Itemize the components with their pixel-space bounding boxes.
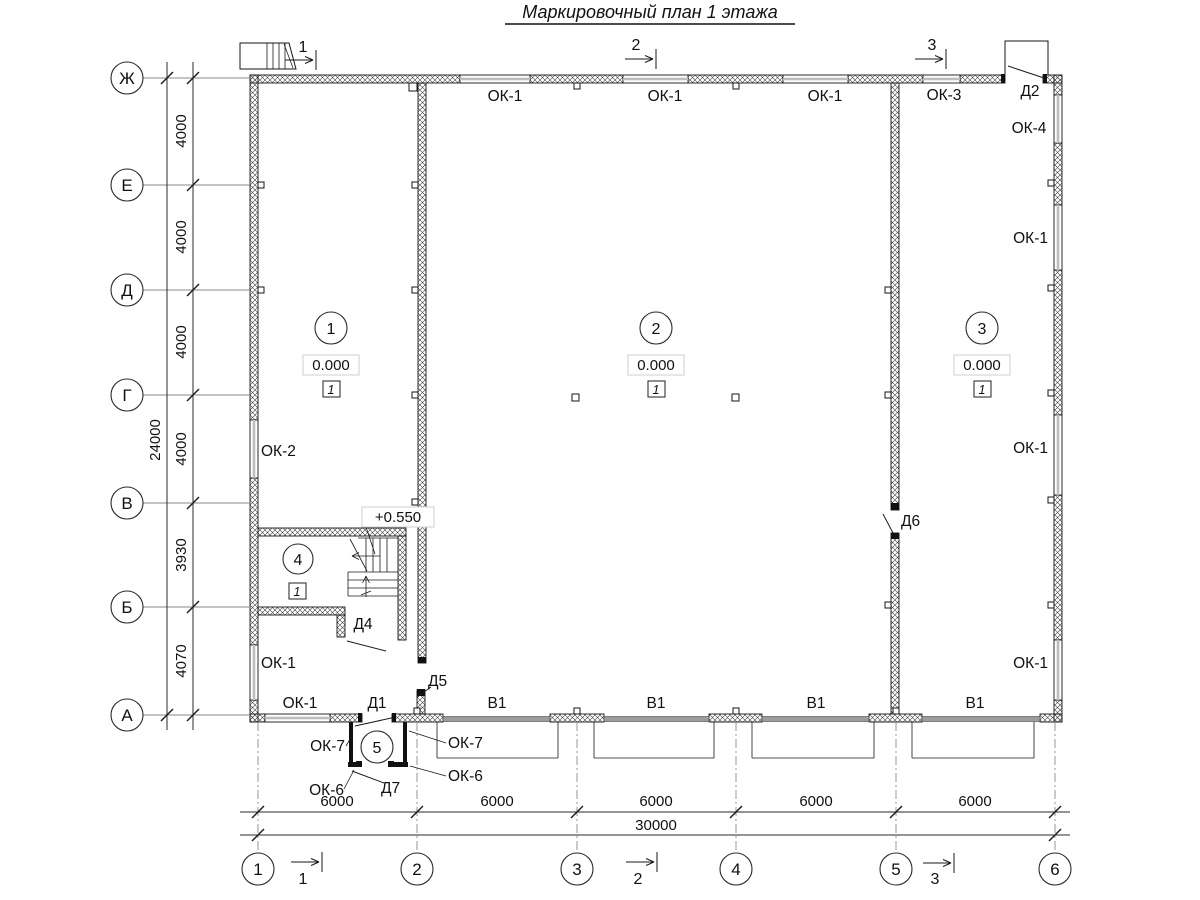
stair-arrow-lower bbox=[361, 576, 371, 597]
door-label: Д6 bbox=[901, 513, 920, 530]
door-d7-leaf bbox=[352, 771, 384, 783]
door-label: Д7 bbox=[381, 780, 400, 797]
window-label: ОК-1 bbox=[488, 88, 523, 105]
window-label: ОК-1 bbox=[808, 88, 843, 105]
dim-row-1: 4000 bbox=[173, 220, 190, 253]
window-label: ОК-4 bbox=[1012, 120, 1047, 137]
room-elevation: 0.000 bbox=[637, 357, 675, 374]
window-label: ОК-7 bbox=[448, 735, 483, 752]
dim-col-2: 6000 bbox=[639, 793, 672, 810]
dim-col-1: 6000 bbox=[480, 793, 513, 810]
entrance-steps bbox=[240, 43, 296, 69]
section-label: 1 bbox=[299, 39, 308, 56]
window-label: ОК-1 bbox=[1013, 230, 1048, 247]
window-label: ОК-7 bbox=[310, 738, 345, 755]
window-label: ОК-2 bbox=[261, 443, 296, 460]
dim-row-total: 24000 bbox=[147, 419, 164, 461]
interior-walls bbox=[417, 83, 899, 714]
dim-row-4: 3930 bbox=[173, 538, 190, 571]
window-label: ОК-1 bbox=[261, 655, 296, 672]
axis-label-row: Ж bbox=[119, 69, 135, 88]
room-number: 3 bbox=[978, 321, 987, 338]
section-label: 1 bbox=[299, 871, 308, 888]
section-mark-bottom-1: 1 bbox=[291, 852, 322, 888]
axis-label-row: А bbox=[121, 706, 133, 725]
room-finish-ref: 1 bbox=[328, 383, 335, 397]
door-d6-leaf bbox=[883, 514, 893, 533]
gate-ramps bbox=[437, 722, 1034, 758]
room-finish-ref: 1 bbox=[979, 383, 986, 397]
dim-row-2: 4000 bbox=[173, 325, 190, 358]
floor-plan-page: Маркировочный план 1 этажа bbox=[0, 0, 1200, 900]
axis-label-row: Е bbox=[121, 176, 132, 195]
room-finish-ref: 1 bbox=[653, 383, 660, 397]
axis-label-col: 5 bbox=[891, 860, 900, 879]
window-label: ОК-3 bbox=[927, 87, 962, 104]
column bbox=[572, 394, 579, 401]
room-marker-3: 3 0.000 1 bbox=[954, 312, 1010, 397]
door-label: Д2 bbox=[1020, 83, 1039, 100]
axis-label-row: В bbox=[121, 494, 132, 513]
axis-label-row: Г bbox=[122, 386, 131, 405]
room-marker-1: 1 0.000 1 bbox=[303, 312, 359, 397]
window-label: ОК-1 bbox=[283, 695, 318, 712]
column bbox=[732, 394, 739, 401]
door-label: Д4 bbox=[353, 616, 372, 633]
section-label: 2 bbox=[634, 871, 643, 888]
dim-col-total: 30000 bbox=[635, 817, 677, 834]
page-title: Маркировочный план 1 этажа bbox=[522, 2, 777, 22]
room-finish-ref: 1 bbox=[294, 585, 301, 599]
room-number: 5 bbox=[373, 740, 382, 757]
door-jambs bbox=[358, 74, 1047, 722]
dim-col-4: 6000 bbox=[958, 793, 991, 810]
stair-elevation-value: +0.550 bbox=[375, 509, 421, 526]
dim-row-0: 4000 bbox=[173, 114, 190, 147]
door-d4-leaf bbox=[347, 641, 386, 651]
gate-label: В1 bbox=[807, 695, 826, 712]
window-label: ОК-6 bbox=[309, 782, 344, 799]
window-label: ОК-1 bbox=[1013, 440, 1048, 457]
door-label: Д1 bbox=[367, 695, 386, 712]
section-label: 3 bbox=[928, 37, 937, 54]
door-d2-leaf bbox=[1008, 66, 1044, 78]
section-label: 3 bbox=[931, 871, 940, 888]
dim-row-5: 4070 bbox=[173, 644, 190, 677]
room-number: 1 bbox=[327, 321, 336, 338]
axis-label-col: 6 bbox=[1050, 860, 1059, 879]
room-marker-4: 4 1 bbox=[283, 544, 313, 599]
section-mark-top-3: 3 bbox=[915, 37, 946, 69]
drawing-title: Маркировочный план 1 этажа bbox=[505, 2, 795, 24]
opening-labels: ОК-1 ОК-1 ОК-1 ОК-3 Д2 ОК-4 ОК-1 ОК-1 ОК… bbox=[261, 83, 1048, 799]
axis-label-col: 2 bbox=[412, 860, 421, 879]
dim-col-3: 6000 bbox=[799, 793, 832, 810]
stair-room: +0.550 bbox=[258, 507, 434, 651]
entrance-canopy bbox=[1005, 41, 1048, 78]
window-label: ОК-6 bbox=[448, 768, 483, 785]
floor-plan-drawing: Маркировочный план 1 этажа bbox=[0, 0, 1200, 900]
stair-break-line bbox=[350, 539, 367, 571]
axis-label-col: 3 bbox=[572, 860, 581, 879]
room-elevation: 0.000 bbox=[312, 357, 350, 374]
gate-label: В1 bbox=[647, 695, 666, 712]
room-number: 2 bbox=[652, 321, 661, 338]
column-marks bbox=[258, 83, 1054, 714]
room-marker-5: 5 bbox=[361, 731, 393, 763]
dim-row-3: 4000 bbox=[173, 432, 190, 465]
room-marker-2: 2 0.000 1 bbox=[628, 312, 684, 397]
axis-label-col: 4 bbox=[731, 860, 740, 879]
gate-label: В1 bbox=[966, 695, 985, 712]
room-elevation: 0.000 bbox=[963, 357, 1001, 374]
window-label: ОК-1 bbox=[648, 88, 683, 105]
axis-label-col: 1 bbox=[253, 860, 262, 879]
section-label: 2 bbox=[632, 37, 641, 54]
section-mark-bottom-3: 3 bbox=[923, 853, 954, 888]
section-mark-top-2: 2 bbox=[625, 37, 656, 69]
gate-label: В1 bbox=[488, 695, 507, 712]
left-axes: 4000 4000 4000 4000 3930 4070 24000 Ж Е … bbox=[111, 62, 250, 731]
axis-label-row: Б bbox=[121, 598, 132, 617]
axis-label-row: Д bbox=[121, 281, 133, 300]
window-label: ОК-1 bbox=[1013, 655, 1048, 672]
section-mark-bottom-2: 2 bbox=[626, 852, 657, 888]
room-number: 4 bbox=[294, 552, 303, 569]
